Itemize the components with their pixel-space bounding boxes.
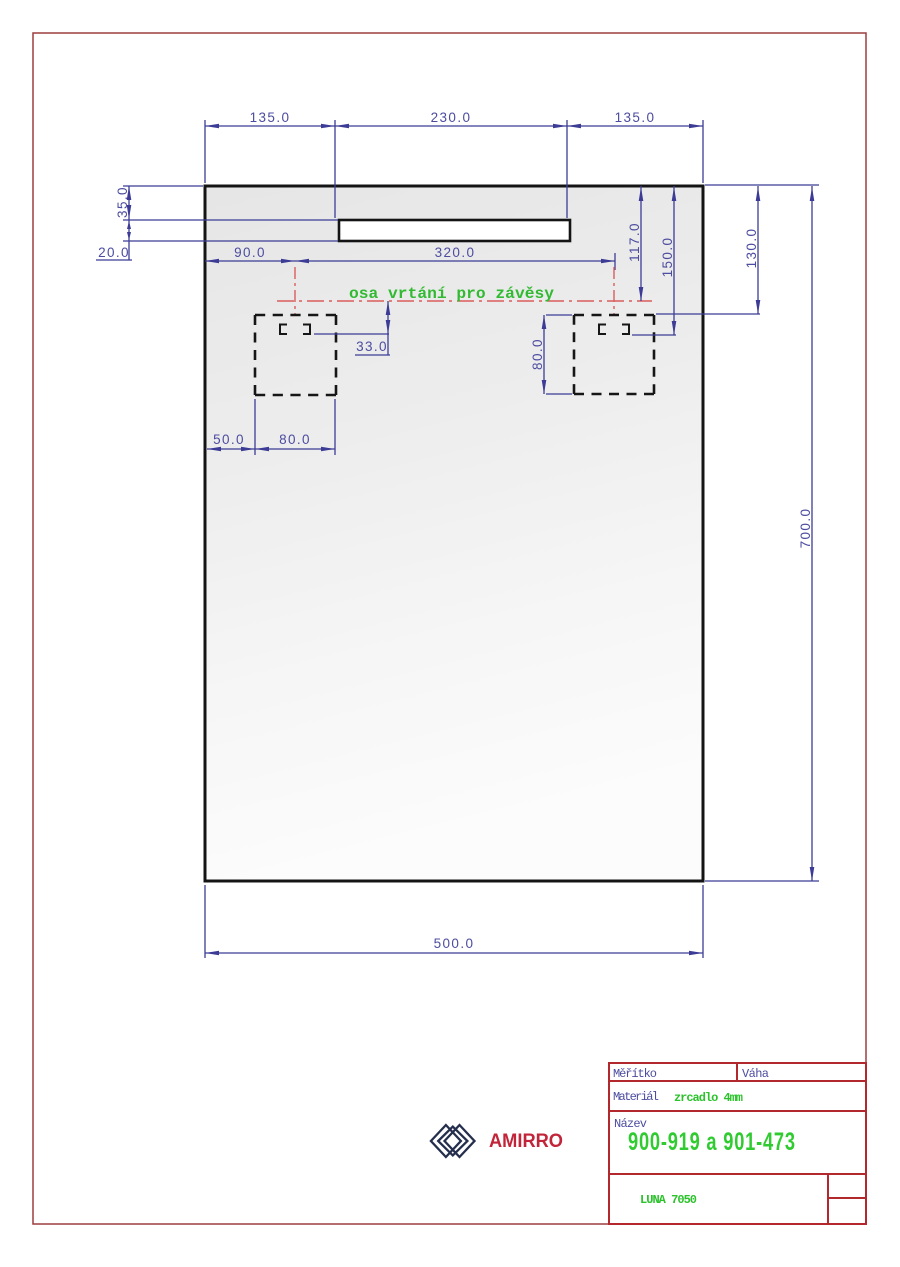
svg-text:50.0: 50.0 [213, 432, 245, 447]
svg-text:117.0: 117.0 [627, 222, 642, 262]
svg-text:LUNA 7050: LUNA 7050 [640, 1193, 697, 1207]
svg-text:AMIRRO: AMIRRO [489, 1130, 563, 1152]
svg-text:320.0: 320.0 [435, 245, 476, 260]
svg-text:zrcadlo 4mm: zrcadlo 4mm [674, 1091, 743, 1105]
svg-text:230.0: 230.0 [431, 110, 472, 125]
svg-text:33.0: 33.0 [356, 339, 388, 354]
svg-text:130.0: 130.0 [744, 228, 759, 269]
svg-text:700.0: 700.0 [798, 508, 813, 549]
svg-text:80.0: 80.0 [530, 338, 545, 370]
svg-text:135.0: 135.0 [250, 110, 291, 125]
svg-text:135.0: 135.0 [615, 110, 656, 125]
svg-text:Materiál: Materiál [613, 1090, 659, 1104]
svg-text:900-919 a 901-473: 900-919 a 901-473 [628, 1127, 796, 1156]
svg-text:osa vrtání pro závěsy: osa vrtání pro závěsy [349, 285, 554, 303]
svg-text:35.0: 35.0 [115, 186, 130, 218]
svg-text:500.0: 500.0 [434, 936, 475, 951]
svg-text:20.0: 20.0 [98, 245, 130, 260]
svg-text:150.0: 150.0 [660, 237, 675, 278]
svg-text:90.0: 90.0 [234, 245, 266, 260]
svg-text:Měřítko: Měřítko [613, 1067, 657, 1081]
svg-text:80.0: 80.0 [279, 432, 311, 447]
svg-text:Váha: Váha [742, 1067, 769, 1081]
